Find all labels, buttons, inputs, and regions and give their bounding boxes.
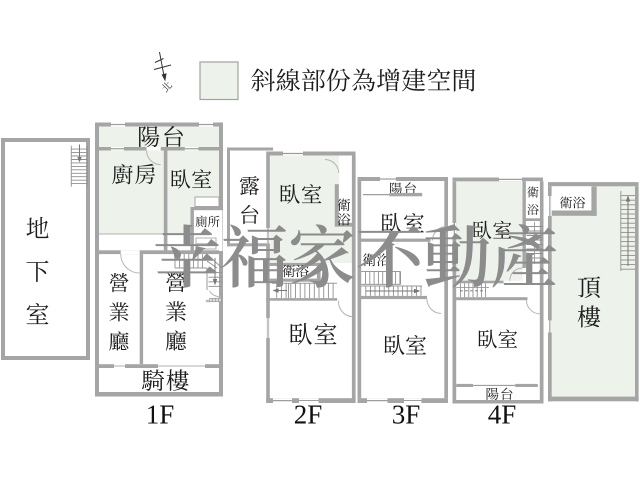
- svg-text:2F: 2F: [294, 400, 323, 430]
- svg-text:3F: 3F: [392, 400, 421, 430]
- svg-text:4F: 4F: [488, 400, 517, 430]
- svg-text:1F: 1F: [146, 400, 175, 430]
